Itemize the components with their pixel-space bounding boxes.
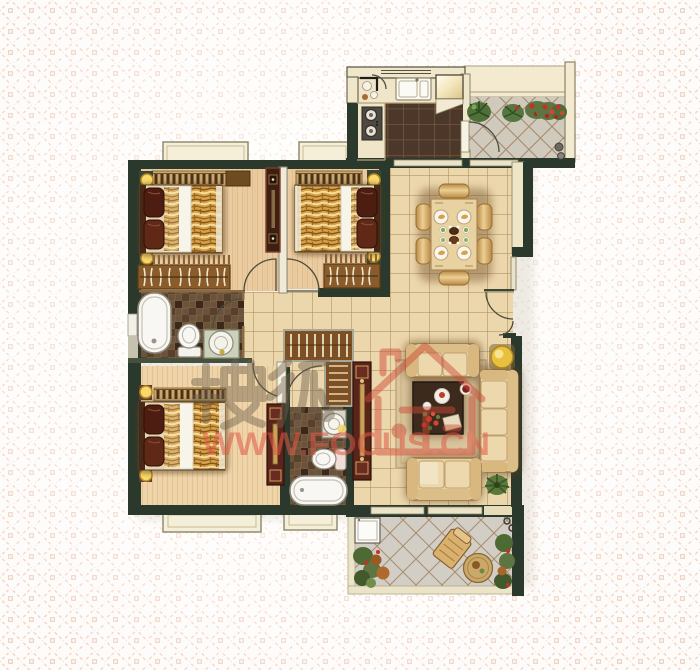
svg-text:WWW.FOCUS.CN: WWW.FOCUS.CN <box>202 426 490 462</box>
